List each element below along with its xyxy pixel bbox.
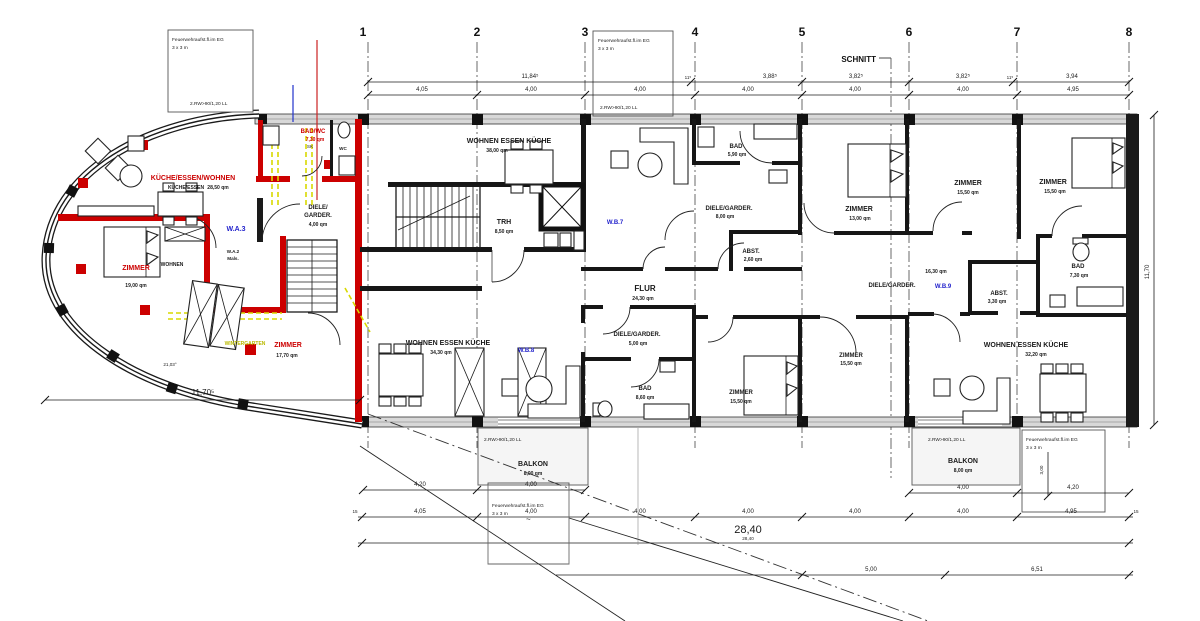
room-abst26-qm: 2,60 qm bbox=[744, 257, 763, 263]
room-diele5-label: DIELE/GARDER. bbox=[613, 332, 660, 338]
room-zimmer78-qm: 15,50 qm bbox=[1044, 189, 1066, 195]
rw-note-top-middle: 2.RW>90/1,20 LL bbox=[600, 105, 638, 111]
room-zimmer56-qm: 15,50 qm bbox=[840, 361, 862, 367]
door-swings bbox=[184, 131, 1082, 387]
room-diele4-label1: DIELE/ bbox=[308, 205, 328, 211]
apartment-staircase bbox=[287, 240, 337, 312]
apartment-wa2-line1: W.A.2 bbox=[227, 249, 240, 254]
room-kew-sub: KÜCHE/ESSEN bbox=[168, 184, 205, 191]
room-zimmer177-label: ZIMMER bbox=[274, 342, 302, 349]
dim-tl-2: 4,00 bbox=[634, 87, 646, 93]
dim-bb-5: 4,00 bbox=[849, 509, 861, 515]
dim-tu-2: 3,88⁵ bbox=[763, 73, 778, 80]
section-label: SCHNITT bbox=[841, 55, 876, 64]
dim-bb-0: 15 bbox=[352, 509, 358, 514]
room-zimmer19-qm: 19,00 qm bbox=[125, 283, 147, 289]
dim-tu-3: 3,82⁵ bbox=[849, 73, 864, 80]
site-diagonals bbox=[360, 414, 928, 621]
balcony-right-label: BALKON bbox=[948, 458, 978, 465]
grid-label-2: 2 bbox=[474, 25, 481, 39]
apartment-wb9: W.B.9 bbox=[935, 284, 952, 290]
room-diele16-qm: 16,30 qm bbox=[925, 269, 947, 275]
rw-note-balcony-right: 2.RW>90/1,20 LL bbox=[928, 437, 966, 443]
room-wintergarten-label: WINTERGARTEN bbox=[225, 341, 266, 347]
rw-note-balcony-center: 2.RW>90/1,20 LL bbox=[484, 437, 522, 443]
dim-tu-0: 11,84⁵ bbox=[521, 73, 539, 80]
dim-bc-0: 5,00 bbox=[865, 567, 877, 573]
balcony-right: 2.RW>90/1,20 LL BALKON 8,00 qm bbox=[912, 428, 1020, 485]
fire-note-4b: 3 x 3 m bbox=[1026, 445, 1042, 451]
elevator bbox=[541, 185, 584, 250]
room-bad59-label: BAD bbox=[730, 144, 744, 150]
room-wohnen-label: WOHNEN bbox=[161, 262, 184, 268]
fire-note-2b: 3 x 3 m bbox=[598, 46, 614, 52]
room-zimmer177-qm: 17,70 qm bbox=[276, 353, 298, 359]
fire-truck-area-right: Feuerwehraufst.fl.im EG 3 x 3 m 3,00 bbox=[1022, 430, 1105, 512]
dim-bb-4: 4,00 bbox=[742, 509, 754, 515]
room-abst33-label: ABST. bbox=[990, 291, 1008, 297]
dim-angle: 21,03° bbox=[163, 362, 176, 367]
balcony-center: 2.RW>90/1,20 LL BALKON 8,00 qm bbox=[478, 428, 588, 485]
room-zimmer19-label: ZIMMER bbox=[122, 265, 150, 272]
room-diele16-label: DIELE/GARDER. bbox=[868, 283, 915, 289]
fire-note-3b: 3 x 3 m bbox=[492, 511, 508, 517]
room-zimmer45-label: ZIMMER bbox=[729, 390, 753, 396]
room-trh-label: TRH bbox=[497, 219, 511, 226]
floor-plan-page: 1 2 3 4 5 6 7 8 SCHNITT bbox=[0, 0, 1200, 621]
room-diele4-label2: GARDER. bbox=[304, 213, 332, 219]
dim-ba-0: 4,20 bbox=[414, 482, 426, 488]
fire-note-1b: 3 x 3 m bbox=[172, 45, 188, 51]
room-kew-label: KÜCHE/ESSEN/WOHNEN bbox=[151, 173, 235, 182]
floor-plan-canvas: 1 2 3 4 5 6 7 8 SCHNITT bbox=[0, 0, 1200, 621]
apartment-wa2-line2: Mals. bbox=[227, 256, 239, 261]
fire-note-1a: Feuerwehraufst.fl.im EG bbox=[172, 37, 224, 43]
room-wek32-qm: 32,20 qm bbox=[1025, 352, 1047, 358]
room-abst26-label: ABST. bbox=[742, 249, 760, 255]
room-bad86-label: BAD bbox=[639, 386, 653, 392]
dim-tl-1: 4,00 bbox=[525, 87, 537, 93]
dim-right-height: 11,70 bbox=[1145, 264, 1151, 279]
room-zimmer67-qm: 15,50 qm bbox=[957, 190, 979, 196]
dim-ba-3: 4,20 bbox=[1067, 485, 1079, 491]
dim-tu-1: 11⁵ bbox=[685, 75, 692, 80]
grid-label-4: 4 bbox=[692, 25, 699, 39]
room-diele8-qm: 8,00 qm bbox=[716, 214, 735, 220]
apartment-wa3: W.A.3 bbox=[226, 226, 245, 233]
room-wek38-qm: 38,00 qm bbox=[486, 148, 508, 154]
bed-zimmer-13 bbox=[848, 144, 906, 197]
room-bad59-qm: 5,90 qm bbox=[728, 152, 747, 158]
room-wek34-qm: 34,30 qm bbox=[430, 350, 452, 356]
room-diele8-label: DIELE/GARDER. bbox=[705, 206, 752, 212]
room-badwc-qm: 7,30 qm bbox=[306, 137, 325, 143]
grid-label-6: 6 bbox=[906, 25, 913, 39]
main-staircase bbox=[396, 186, 480, 248]
dim-tl-6: 4,95 bbox=[1067, 87, 1079, 93]
dim-tu-4: 3,82⁵ bbox=[956, 73, 971, 80]
fire-box-height-dim: 3,00 bbox=[1039, 465, 1044, 474]
room-trh-qm: 8,50 qm bbox=[495, 229, 514, 235]
dim-ba-1: 4,00 bbox=[525, 482, 537, 488]
dim-bb-1: 4,05 bbox=[414, 509, 426, 515]
room-wc-label: WC bbox=[339, 146, 347, 151]
room-diele4-qm: 4,00 qm bbox=[309, 222, 328, 228]
room-zimmer67-label: ZIMMER bbox=[954, 180, 982, 187]
room-zimmer78-label: ZIMMER bbox=[1039, 179, 1067, 186]
grid-label-1: 1 bbox=[360, 25, 367, 39]
room-badwc-sk: SK bbox=[307, 144, 314, 149]
room-bad73-qm: 7,30 qm bbox=[1070, 273, 1089, 279]
room-bad73-label: BAD bbox=[1072, 264, 1086, 270]
apartment-wb7: W.B.7 bbox=[607, 220, 624, 226]
dim-bc-1: 6,51 bbox=[1031, 567, 1043, 573]
apartment-wb8: W.B.8 bbox=[518, 348, 535, 354]
dim-bb-2: 4,00 bbox=[525, 509, 537, 515]
dim-bb-6: 4,00 bbox=[957, 509, 969, 515]
room-badwc-label: BAD/WC bbox=[301, 129, 326, 135]
dim-bb-7: 4,95 bbox=[1065, 509, 1077, 515]
room-wek38-label: WOHNEN ESSEN KÜCHE bbox=[467, 136, 552, 145]
room-zimmer13-qm: 13,00 qm bbox=[849, 216, 871, 222]
squiggle: ~ bbox=[526, 515, 531, 524]
room-wek32-label: WOHNEN ESSEN KÜCHE bbox=[984, 340, 1069, 349]
grid-label-8: 8 bbox=[1126, 25, 1133, 39]
dim-total-small: 28,40 bbox=[742, 536, 754, 541]
fire-truck-area-top-left: Feuerwehraufst.fl.im EG 3 x 3 m 2.RW>90/… bbox=[168, 30, 253, 112]
dim-tl-5: 4,00 bbox=[957, 87, 969, 93]
interior-walls bbox=[330, 119, 1127, 422]
dim-tl-4: 4,00 bbox=[849, 87, 861, 93]
grid-label-5: 5 bbox=[799, 25, 806, 39]
grid-label-3: 3 bbox=[582, 25, 589, 39]
bed-zimmer-45 bbox=[744, 356, 798, 415]
curved-west-facade bbox=[44, 114, 362, 424]
room-zimmer45-qm: 15,50 qm bbox=[730, 399, 752, 405]
fire-note-2a: Feuerwehraufst.fl.im EG bbox=[598, 38, 650, 44]
room-zimmer13-label: ZIMMER bbox=[845, 206, 873, 213]
fire-truck-area-bottom-center: Feuerwehraufst.fl.im EG 3 x 3 m ~ bbox=[488, 483, 569, 564]
dim-tu-6: 3,94 bbox=[1066, 74, 1078, 80]
fire-truck-area-top-middle: Feuerwehraufst.fl.im EG 3 x 3 m 2.RW>90/… bbox=[593, 31, 673, 116]
room-wek34-label: WOHNEN ESSEN KÜCHE bbox=[406, 338, 491, 347]
bed-zimmer-78 bbox=[1072, 138, 1125, 188]
rw-note-top-left: 2.RW>90/1,20 LL bbox=[190, 101, 228, 107]
room-bad86-qm: 8,60 qm bbox=[636, 395, 655, 401]
dim-bb-3: 4,00 bbox=[634, 509, 646, 515]
room-flur-label: FLUR bbox=[634, 284, 656, 293]
room-diele5-qm: 5,00 qm bbox=[629, 341, 648, 347]
dim-total: 28,40 bbox=[734, 524, 762, 536]
room-flur-qm: 24,30 qm bbox=[632, 296, 654, 302]
dim-ba-2: 4,00 bbox=[957, 485, 969, 491]
dim-left-width: 11,70⁵ bbox=[192, 388, 215, 397]
dim-tl-0: 4,05 bbox=[416, 87, 428, 93]
fire-note-4a: Feuerwehraufst.fl.im EG bbox=[1026, 437, 1078, 443]
dim-tl-3: 4,00 bbox=[742, 87, 754, 93]
room-zimmer56-label: ZIMMER bbox=[839, 353, 863, 359]
room-abst33-qm: 3,30 qm bbox=[988, 299, 1007, 305]
grid-label-7: 7 bbox=[1014, 25, 1021, 39]
dim-bb-8: 15 bbox=[1133, 509, 1139, 514]
balcony-center-qm: 8,00 qm bbox=[524, 471, 543, 477]
dim-tu-5: 11⁵ bbox=[1007, 75, 1014, 80]
balcony-center-label: BALKON bbox=[518, 461, 548, 468]
balcony-right-qm: 8,00 qm bbox=[954, 468, 973, 474]
room-kew-qm: 28,50 qm bbox=[207, 185, 229, 191]
furniture bbox=[78, 122, 1125, 424]
